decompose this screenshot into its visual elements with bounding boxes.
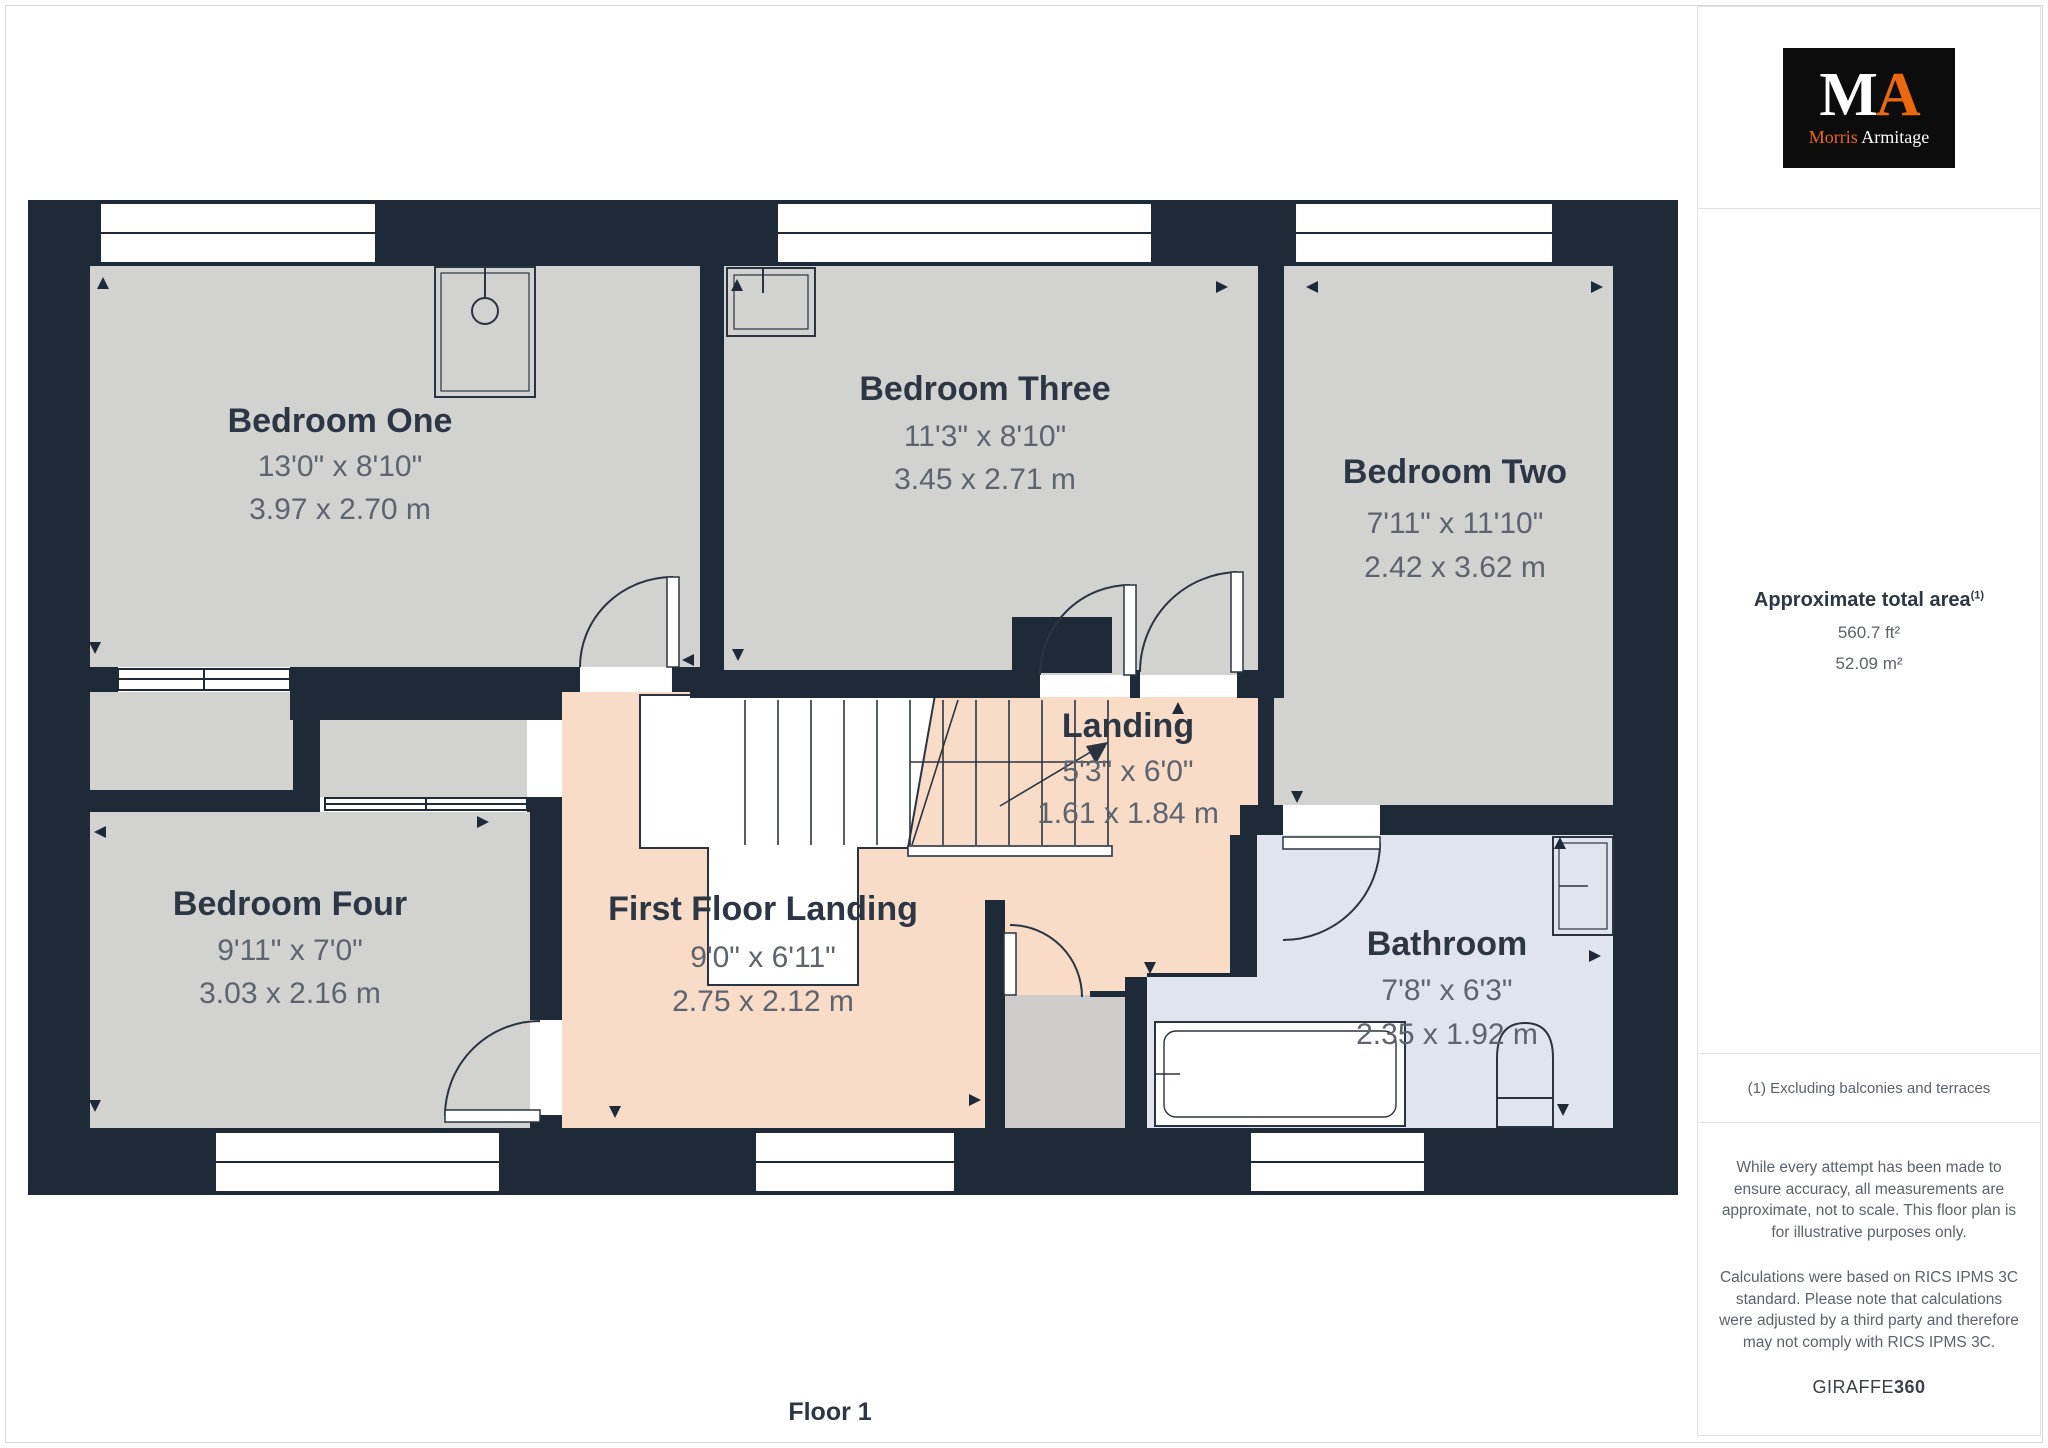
svg-text:1.61 x 1.84 m: 1.61 x 1.84 m	[1037, 797, 1219, 830]
svg-text:Bedroom One: Bedroom One	[228, 402, 453, 440]
wall-chimney-block	[1012, 617, 1112, 673]
window-landing	[755, 1132, 955, 1192]
wall-closet-mid-stub	[293, 692, 320, 812]
room-label-bedroom-one: Bedroom One 13'0" x 8'10" 3.97 x 2.70 m	[228, 402, 453, 526]
opening-closet-left	[118, 669, 290, 690]
wall-closet-right-bottom-bit	[527, 797, 562, 812]
svg-text:5'3" x 6'0": 5'3" x 6'0"	[1062, 755, 1193, 788]
area-footnote-ref: (1)	[1971, 589, 1984, 601]
svg-text:7'8" x 6'3": 7'8" x 6'3"	[1381, 974, 1512, 1007]
wall-outer-right	[1613, 200, 1678, 1195]
sidebar-area-section: Approximate total area(1) 560.7 ft² 52.0…	[1698, 209, 2040, 1054]
svg-text:Bedroom Two: Bedroom Two	[1343, 453, 1567, 491]
giraffe360-brand: GIRAFFE360	[1718, 1377, 2020, 1399]
floor-label: Floor 1	[0, 1398, 1660, 1427]
wall-cupboard-right	[1125, 977, 1147, 1128]
sidebar-footnote: (1) Excluding balconies and terraces	[1698, 1054, 2040, 1123]
wall-bath-top-left	[1240, 805, 1283, 835]
closet-right-floor	[320, 720, 527, 797]
opening-closet-right	[325, 798, 527, 810]
svg-text:Bedroom Four: Bedroom Four	[173, 885, 407, 923]
svg-text:3.45 x 2.71 m: 3.45 x 2.71 m	[894, 463, 1076, 496]
agency-logo-name: Morris Armitage	[1809, 127, 1930, 148]
cupboard-floor	[1005, 995, 1125, 1128]
svg-text:13'0" x 8'10": 13'0" x 8'10"	[258, 450, 423, 483]
disclaimer-paragraph-2: Calculations were based on RICS IPMS 3C …	[1718, 1267, 2020, 1353]
window-bedroom-four	[215, 1132, 500, 1192]
bedroom-two-floor-strip	[1274, 698, 1613, 805]
wall-bed1-bottom-b	[562, 667, 580, 692]
total-area-ft: 560.7 ft²	[1838, 623, 1900, 643]
wall-bed1-bottom-a	[90, 667, 118, 692]
floorplan-page: Bedroom One 13'0" x 8'10" 3.97 x 2.70 m …	[0, 0, 2048, 1448]
window-bedroom-two	[1295, 203, 1553, 263]
svg-text:11'3" x 8'10": 11'3" x 8'10"	[904, 420, 1066, 453]
disclaimer-paragraph-1: While every attempt has been made to ens…	[1718, 1157, 2020, 1243]
svg-text:3.97 x 2.70 m: 3.97 x 2.70 m	[249, 493, 431, 526]
wall-bed3-bottom	[690, 670, 1040, 698]
agency-logo-monogram: MA	[1819, 67, 1918, 123]
wall-cupboard-top-edge	[1090, 991, 1125, 997]
room-label-landing: Landing 5'3" x 6'0" 1.61 x 1.84 m	[1037, 707, 1219, 830]
sidebar-logo-section: MA Morris Armitage	[1698, 7, 2040, 209]
total-area-heading: Approximate total area(1)	[1754, 589, 1984, 612]
wall-bed3-bed2	[1258, 266, 1284, 697]
wall-cupboard-left	[985, 900, 1005, 1128]
wall-closet-right-top	[290, 667, 562, 720]
window-bathroom	[1250, 1132, 1425, 1192]
svg-text:2.75 x 2.12 m: 2.75 x 2.12 m	[672, 985, 854, 1018]
stair-bottom-edge	[908, 846, 1112, 856]
wall-landing-bed2	[1258, 698, 1274, 805]
window-bedroom-three	[777, 203, 1152, 263]
svg-text:9'0" x 6'11": 9'0" x 6'11"	[690, 941, 836, 974]
room-label-bedroom-two: Bedroom Two 7'11" x 11'10" 2.42 x 3.62 m	[1343, 453, 1567, 584]
wall-tub-ledge-line	[1147, 973, 1230, 977]
bedroom-four-floor	[90, 812, 530, 1128]
svg-text:7'11" x 11'10": 7'11" x 11'10"	[1367, 507, 1544, 540]
wall-bed2-door-stub	[1237, 670, 1284, 698]
wall-bed1-bed3	[700, 266, 724, 692]
closet-left-floor	[90, 692, 293, 790]
sidebar-disclaimer-section: While every attempt has been made to ens…	[1698, 1123, 2040, 1435]
svg-text:2.42 x 3.62 m: 2.42 x 3.62 m	[1364, 551, 1546, 584]
wall-closet-left-bottom	[90, 790, 293, 812]
svg-text:Bedroom Three: Bedroom Three	[859, 370, 1110, 408]
svg-text:3.03 x 2.16 m: 3.03 x 2.16 m	[199, 977, 381, 1010]
wall-outer-left	[28, 200, 90, 1195]
svg-text:9'11" x 7'0": 9'11" x 7'0"	[217, 934, 363, 967]
wall-bath-top-right	[1380, 805, 1613, 835]
wall-bath-left	[1230, 835, 1257, 977]
agency-logo: MA Morris Armitage	[1783, 48, 1955, 168]
wall-bed4-right-upper	[530, 812, 562, 1020]
window-bedroom-one	[100, 203, 376, 263]
total-area-m: 52.09 m²	[1835, 654, 1902, 674]
svg-text:First Floor Landing: First Floor Landing	[608, 890, 918, 928]
sidebar: MA Morris Armitage Approximate total are…	[1697, 6, 2041, 1436]
svg-text:Bathroom: Bathroom	[1367, 925, 1528, 963]
svg-text:Landing: Landing	[1062, 707, 1194, 745]
room-label-bathroom: Bathroom 7'8" x 6'3" 2.35 x 1.92 m	[1356, 925, 1538, 1051]
svg-text:2.35 x 1.92 m: 2.35 x 1.92 m	[1356, 1018, 1538, 1051]
